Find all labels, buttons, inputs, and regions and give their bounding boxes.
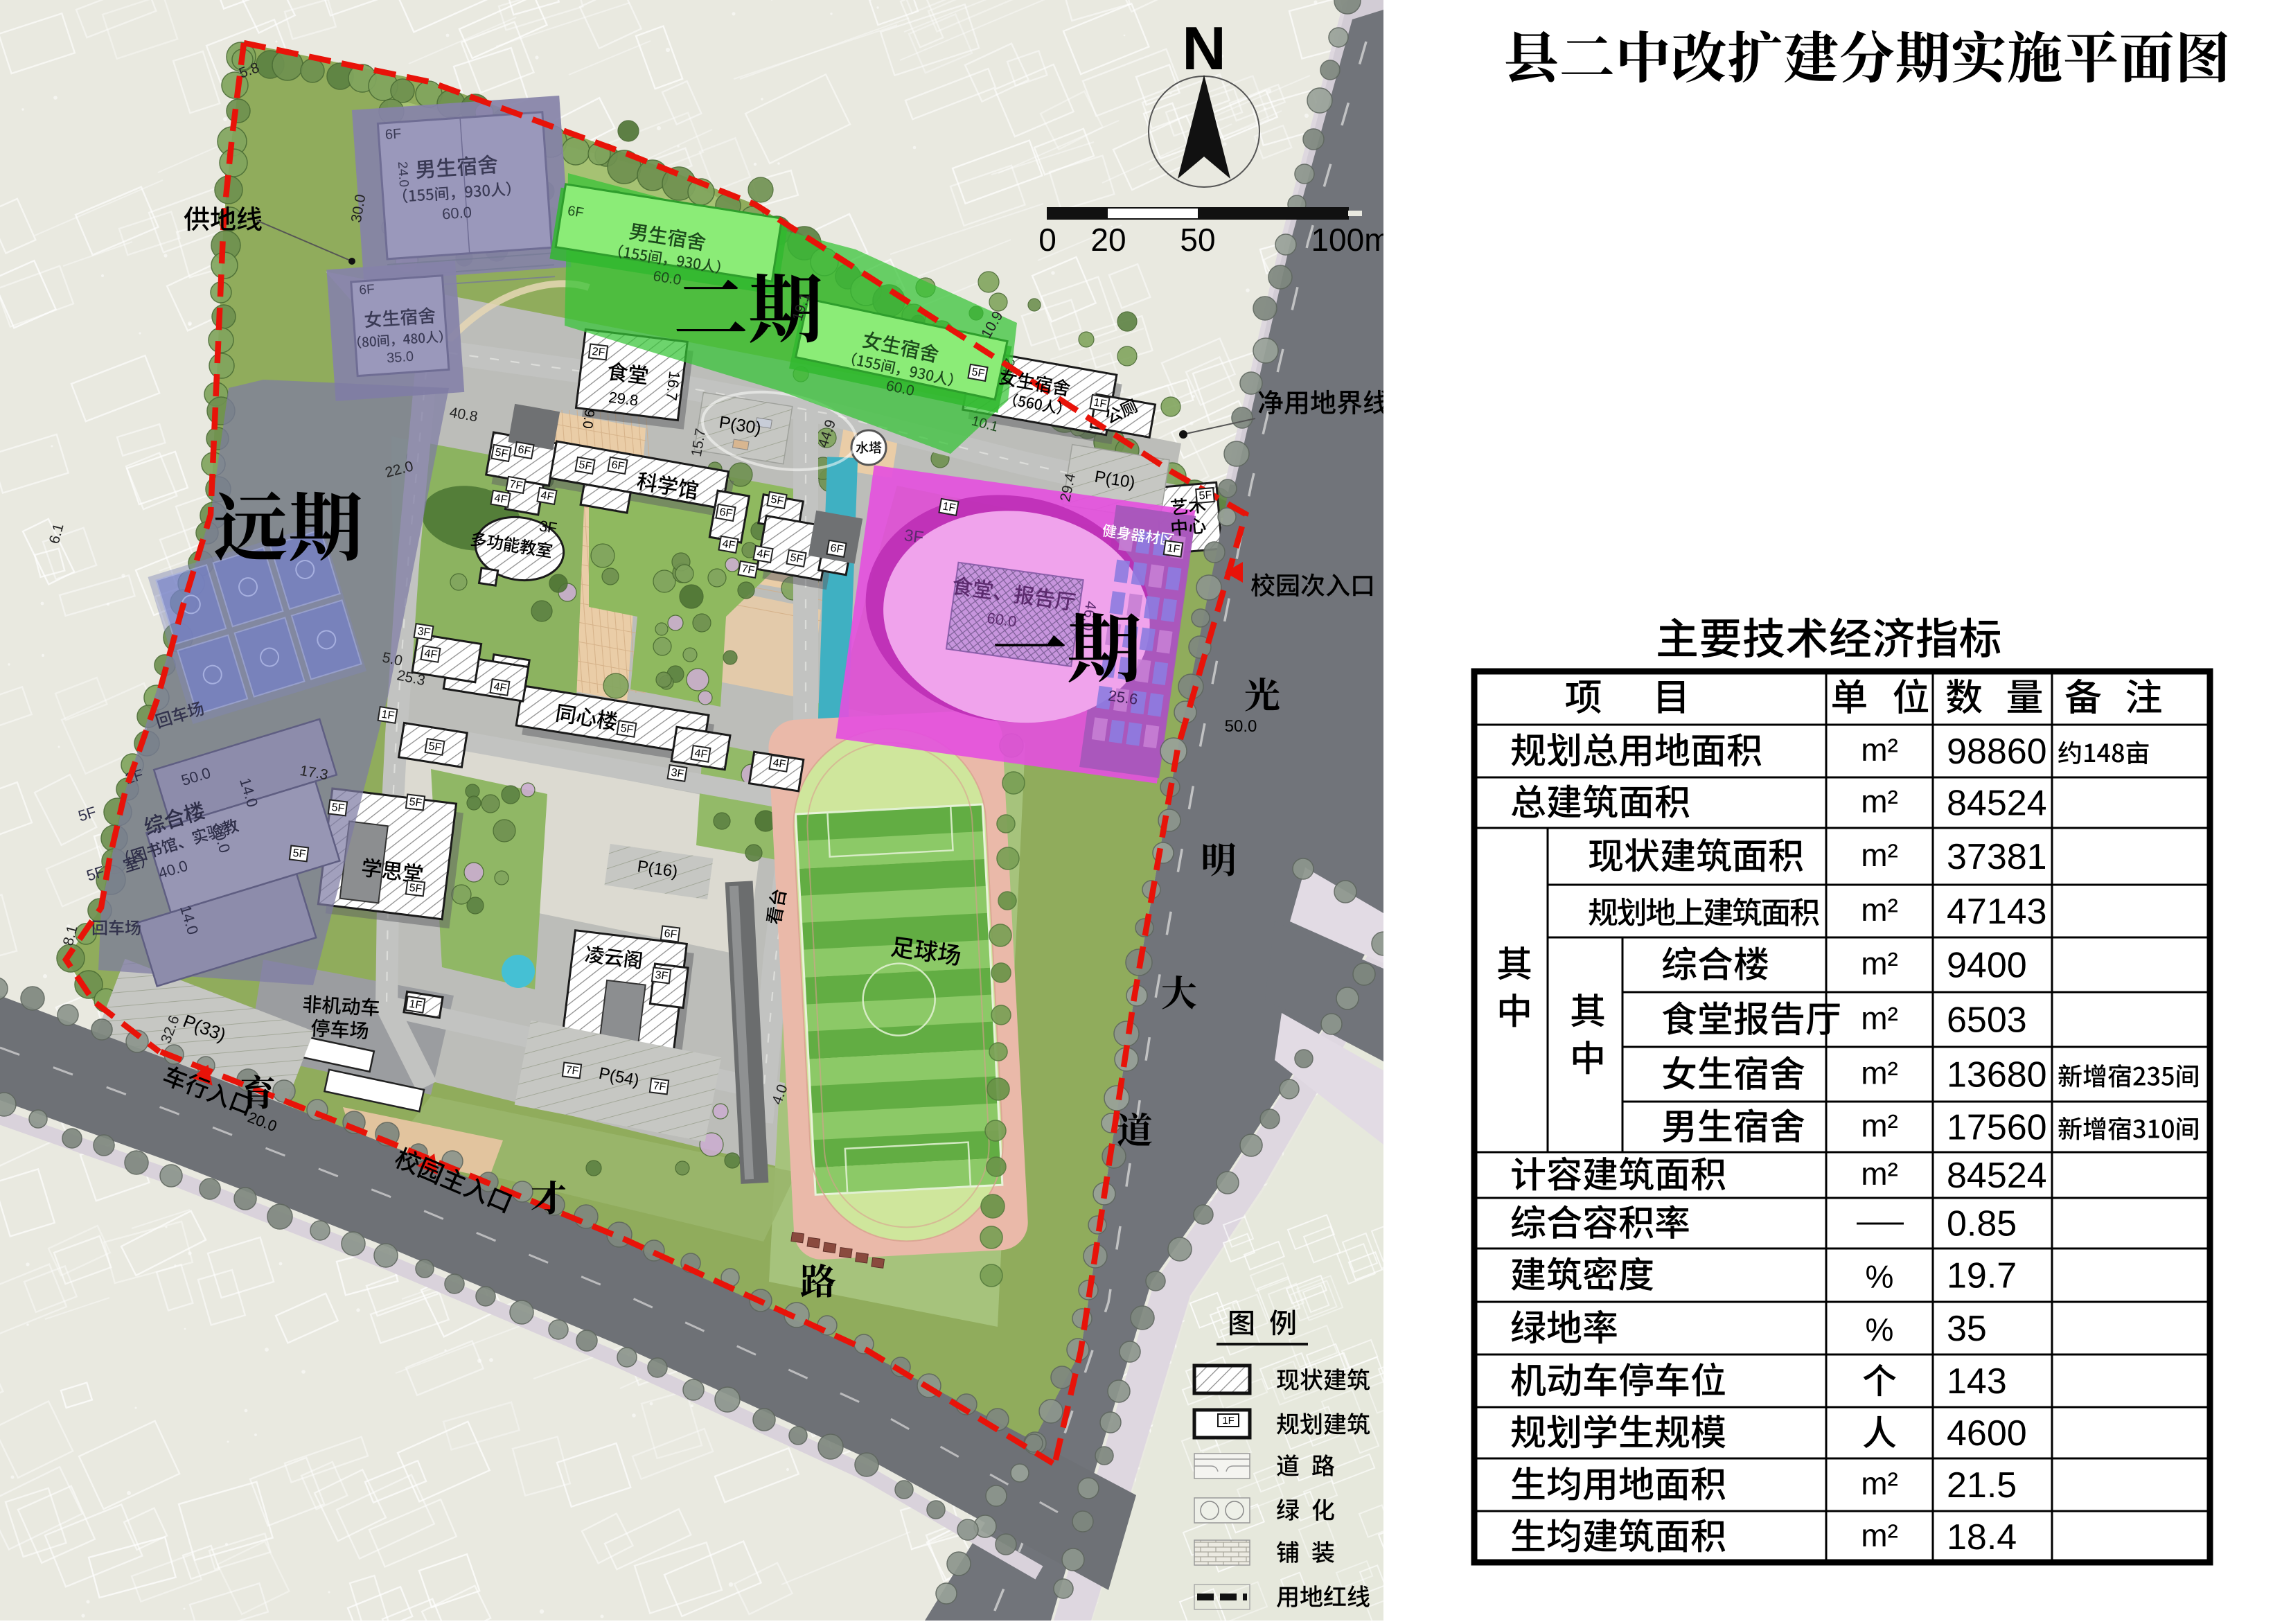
svg-text:m²: m² [1861, 1055, 1898, 1091]
svg-text:7F: 7F [508, 479, 524, 493]
svg-text:4F: 4F [540, 490, 555, 504]
svg-text:1F: 1F [1093, 397, 1108, 411]
svg-text:143: 143 [1947, 1361, 2007, 1402]
svg-text:21.5: 21.5 [1947, 1465, 2017, 1506]
svg-text:1F: 1F [1222, 1415, 1235, 1427]
svg-text:6F: 6F [517, 444, 532, 458]
svg-text:5F: 5F [409, 882, 423, 895]
svg-text:29.8: 29.8 [608, 389, 639, 409]
svg-text:1F: 1F [1167, 542, 1181, 556]
svg-text:7F: 7F [653, 1080, 667, 1093]
svg-text:9400: 9400 [1947, 946, 2027, 986]
svg-text:m²: m² [1861, 1465, 1898, 1501]
svg-text:20: 20 [1090, 222, 1126, 258]
svg-text:4F: 4F [756, 548, 771, 562]
svg-text:3F: 3F [416, 626, 431, 639]
svg-text:9.0: 9.0 [579, 409, 596, 430]
svg-text:2F: 2F [592, 346, 606, 359]
svg-text:4F: 4F [423, 648, 438, 662]
svg-text:5F: 5F [1198, 489, 1212, 502]
svg-text:4F: 4F [493, 493, 508, 506]
svg-text:84524: 84524 [1947, 1156, 2047, 1196]
svg-text:6F: 6F [718, 506, 734, 520]
svg-text:4F: 4F [493, 681, 507, 695]
svg-text:6F: 6F [359, 282, 375, 297]
svg-text:4600: 4600 [1947, 1413, 2027, 1454]
svg-text:m²: m² [1861, 946, 1898, 982]
svg-text:m²: m² [1861, 1517, 1898, 1553]
svg-text:1F: 1F [941, 501, 957, 515]
svg-text:4F: 4F [693, 748, 708, 761]
svg-text:m²: m² [1861, 784, 1898, 820]
svg-text:17560: 17560 [1947, 1108, 2047, 1148]
svg-text:6503: 6503 [1947, 1000, 2027, 1041]
svg-text:3F: 3F [670, 767, 684, 781]
svg-text:5F: 5F [971, 367, 986, 380]
svg-text:6F: 6F [384, 126, 402, 143]
svg-text:18.4: 18.4 [1947, 1517, 2017, 1557]
svg-text:5F: 5F [789, 552, 804, 566]
svg-text:84524: 84524 [1947, 784, 2047, 824]
svg-text:50: 50 [1180, 222, 1215, 258]
svg-text:5F: 5F [292, 847, 307, 860]
svg-text:100m: 100m [1311, 222, 1390, 258]
svg-text:50.0: 50.0 [1225, 717, 1257, 736]
svg-text:5F: 5F [427, 741, 442, 754]
svg-text:5F: 5F [331, 802, 346, 815]
svg-text:3F: 3F [903, 526, 925, 547]
svg-text:47143: 47143 [1947, 892, 2047, 932]
svg-text:35.0: 35.0 [386, 349, 414, 367]
svg-text:60.0: 60.0 [441, 204, 472, 223]
svg-text:13680: 13680 [1947, 1055, 2047, 1095]
svg-text:%: % [1866, 1259, 1894, 1295]
svg-text:35: 35 [1947, 1309, 1987, 1349]
svg-text:0: 0 [1038, 222, 1056, 258]
svg-text:m²: m² [1861, 892, 1898, 928]
svg-text:6F: 6F [610, 459, 626, 473]
svg-text:m²: m² [1861, 1000, 1898, 1036]
svg-text:6F: 6F [664, 928, 678, 941]
svg-text:m²: m² [1861, 732, 1898, 768]
svg-text:16.7: 16.7 [662, 370, 683, 402]
svg-text:4F: 4F [721, 538, 736, 552]
svg-text:7F: 7F [741, 563, 756, 577]
svg-text:%: % [1866, 1312, 1894, 1348]
svg-text:5F: 5F [770, 494, 785, 508]
svg-text:4F: 4F [772, 757, 786, 771]
svg-text:5F: 5F [409, 796, 423, 809]
svg-text:37381: 37381 [1947, 837, 2047, 877]
svg-text:5F: 5F [578, 459, 593, 473]
svg-text:24.0: 24.0 [395, 161, 412, 187]
svg-text:19.7: 19.7 [1947, 1256, 2017, 1296]
svg-text:7F: 7F [565, 1064, 580, 1077]
svg-text:1F: 1F [408, 998, 423, 1012]
svg-text:3F: 3F [538, 517, 558, 537]
svg-text:98860: 98860 [1947, 732, 2047, 772]
svg-text:1F: 1F [380, 709, 395, 723]
svg-text:6F: 6F [829, 542, 844, 556]
svg-text:0.85: 0.85 [1947, 1204, 2017, 1244]
svg-text:N: N [1182, 14, 1226, 82]
svg-text:m²: m² [1861, 1108, 1898, 1144]
svg-text:3F: 3F [655, 969, 669, 982]
svg-text:m²: m² [1861, 1156, 1898, 1192]
svg-text:m²: m² [1861, 837, 1898, 873]
svg-text:5F: 5F [494, 447, 509, 461]
svg-text:5F: 5F [619, 723, 634, 736]
svg-text:6F: 6F [567, 203, 585, 220]
